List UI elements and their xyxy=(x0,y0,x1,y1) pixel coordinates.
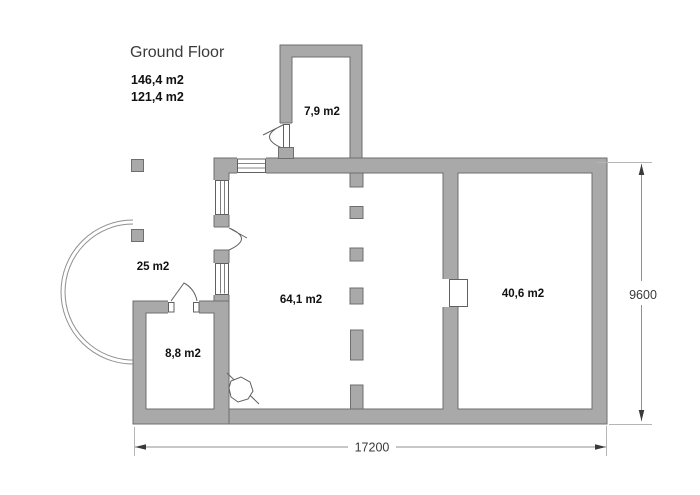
small-room-door-swing xyxy=(171,283,197,301)
main-room-area-label: 64,1 m2 xyxy=(280,294,322,306)
small-room-area-label: 8,8 m2 xyxy=(165,348,201,360)
floor-plan-page: 17200 9600 Ground Floor 146,4 m2 121,4 m… xyxy=(0,0,700,495)
terrace-area-label: 25 m2 xyxy=(137,261,170,273)
pillar-stub-bottom xyxy=(351,385,364,409)
gross-area-label: 146,4 m2 xyxy=(131,73,184,87)
window-left-1 xyxy=(216,181,229,215)
dimension-bottom: 17200 xyxy=(135,426,607,456)
pillar-1 xyxy=(350,207,363,219)
floor-plan-drawing: 17200 9600 Ground Floor 146,4 m2 121,4 m… xyxy=(0,0,700,495)
main-building-walls xyxy=(214,158,607,424)
door-left-opening xyxy=(213,227,230,250)
terrace-post-2 xyxy=(132,230,144,242)
shower-basin xyxy=(229,377,253,402)
annex-area-label: 7,9 m2 xyxy=(304,106,340,118)
dimension-right-arrow-bottom xyxy=(639,410,645,421)
pillar-stub-top xyxy=(350,173,363,187)
annex-door-pillar xyxy=(279,148,294,159)
dimension-width-label: 17200 xyxy=(355,441,390,455)
small-room-walls xyxy=(133,301,229,424)
small-room-door-jamb-right xyxy=(194,303,200,313)
pillar-4 xyxy=(351,330,364,360)
divider-doorway-frame xyxy=(450,280,468,307)
terrace-post-1 xyxy=(132,160,144,172)
pillar-2 xyxy=(350,248,363,261)
annex-door-leaf xyxy=(284,125,290,149)
terrace-arc xyxy=(61,220,133,364)
dimension-bottom-arrow-right xyxy=(595,444,606,450)
window-left-2 xyxy=(216,264,229,295)
dimension-height-label: 9600 xyxy=(629,288,657,302)
net-area-label: 121,4 m2 xyxy=(131,90,184,104)
right-room-area-label: 40,6 m2 xyxy=(502,288,544,300)
pillar-3 xyxy=(350,288,363,304)
small-room-door-jamb-left xyxy=(169,303,175,313)
dimension-bottom-arrow-left xyxy=(135,444,146,450)
door-left-swing xyxy=(229,228,247,250)
window-top xyxy=(238,159,266,173)
dimension-right-arrow-top xyxy=(639,164,645,175)
page-title: Ground Floor xyxy=(130,44,225,61)
